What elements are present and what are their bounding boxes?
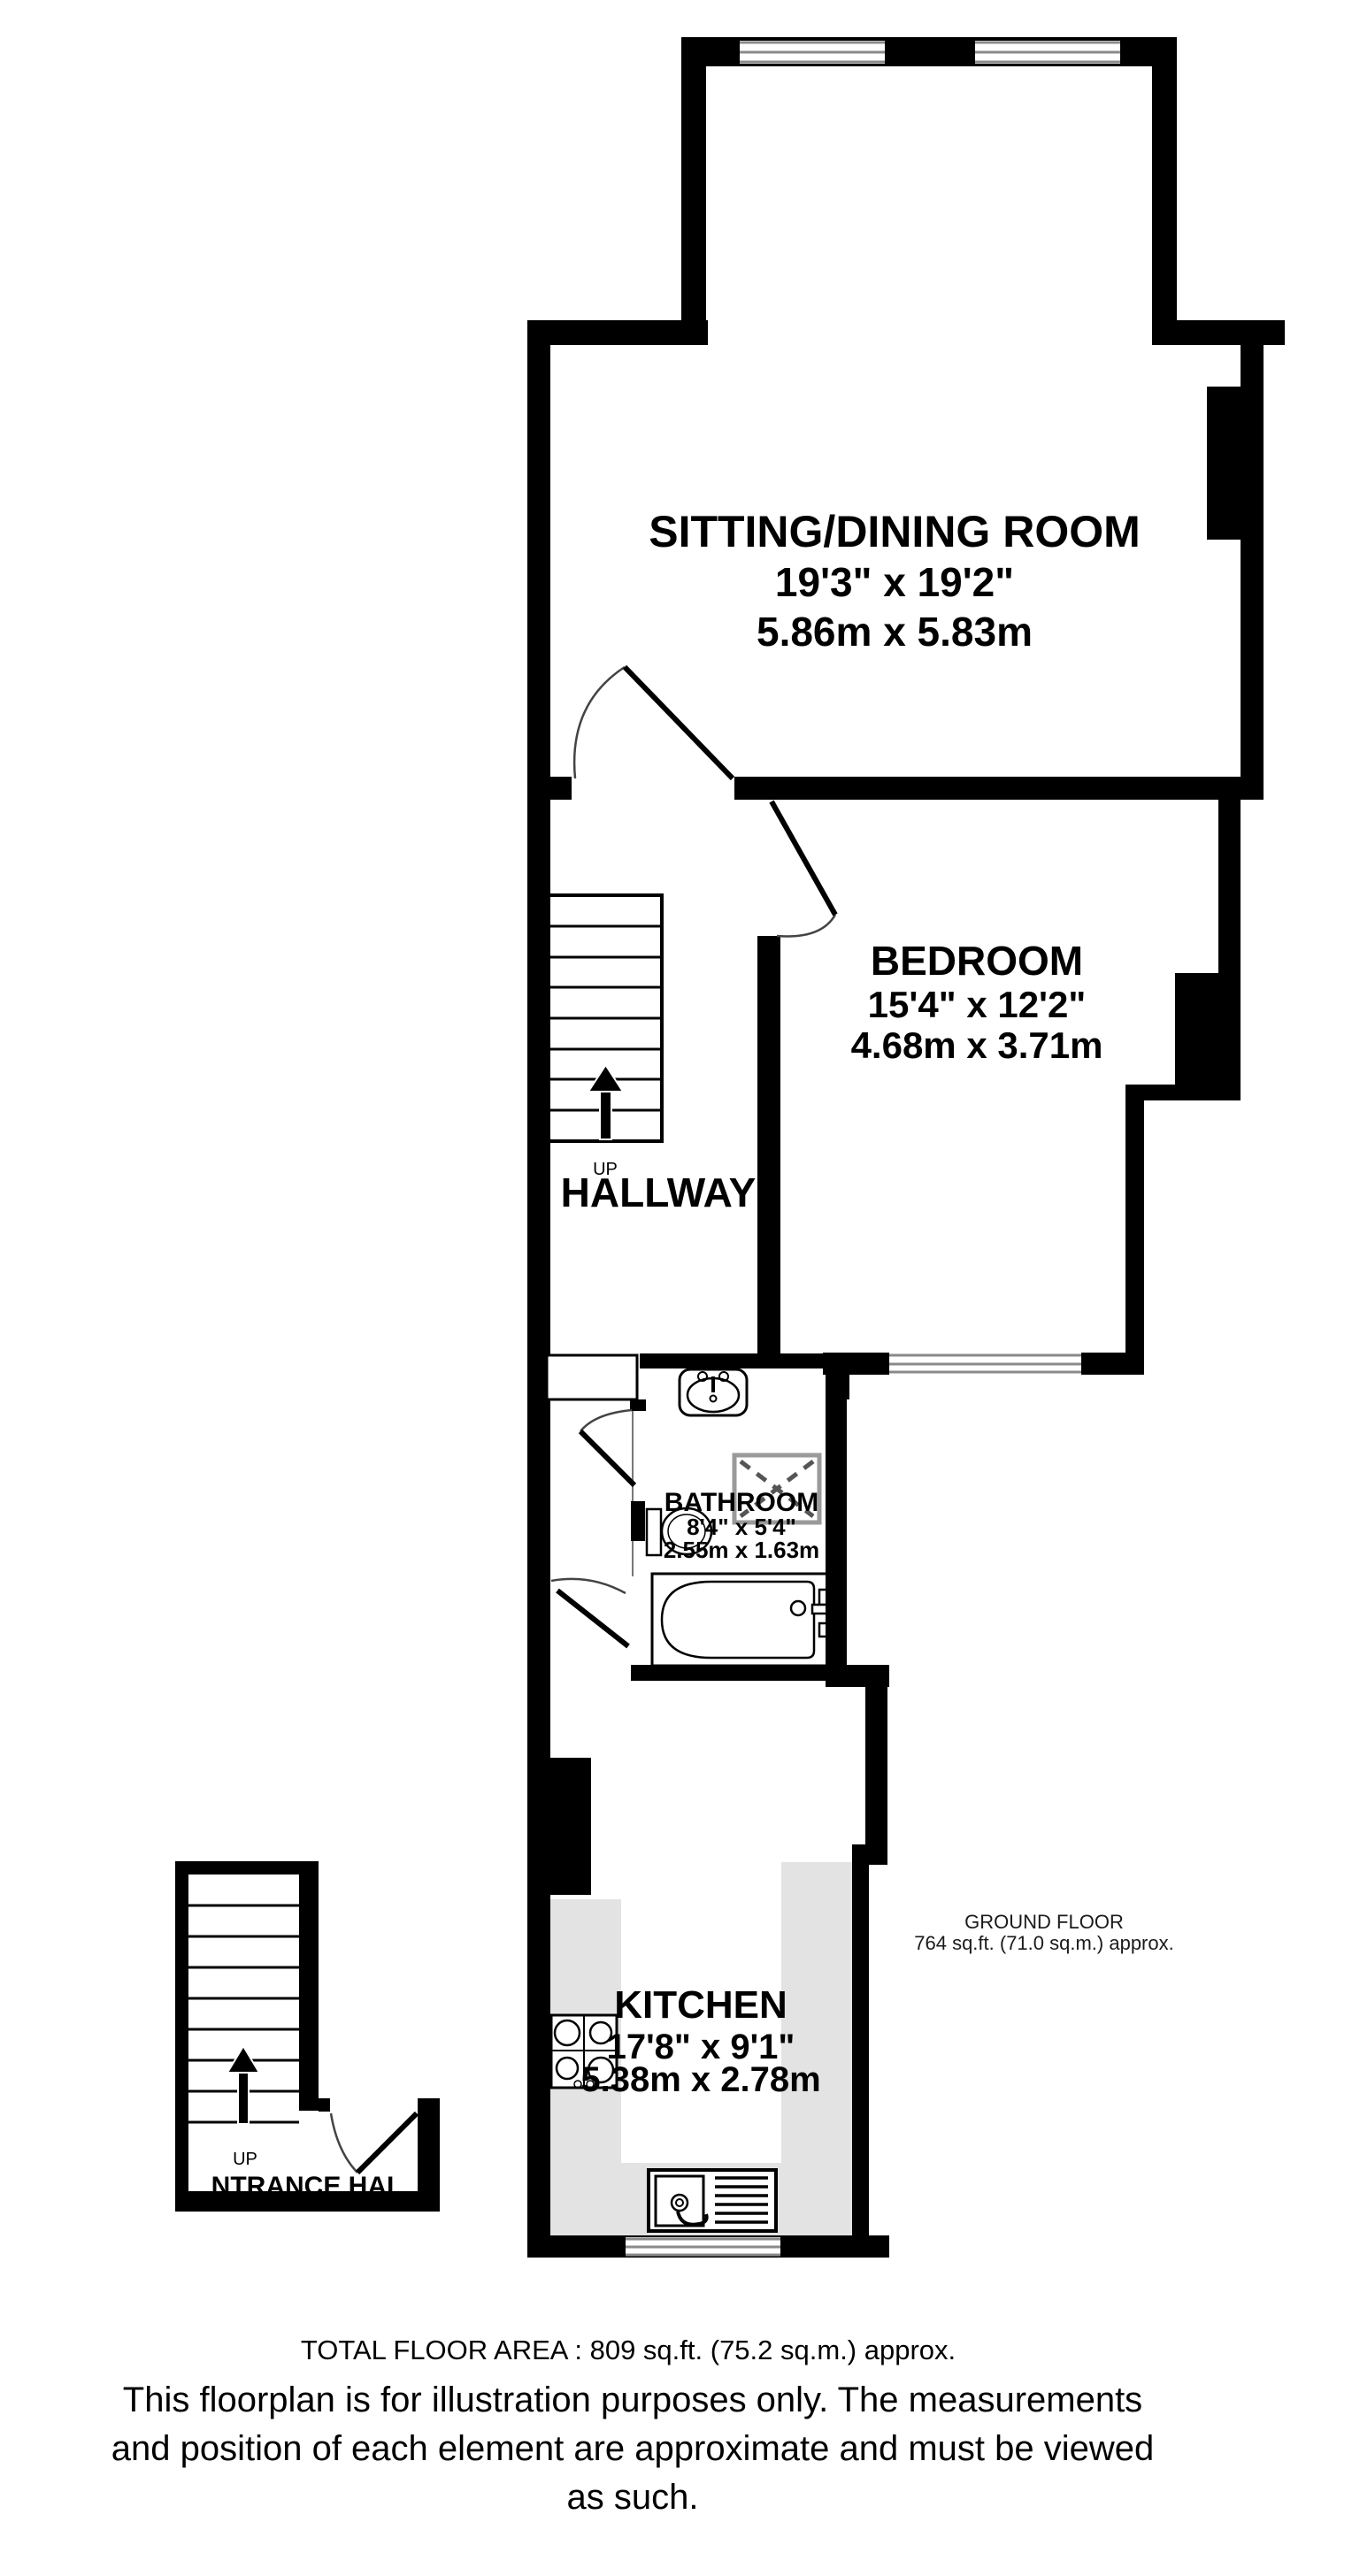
wall-kitchen-step (852, 1844, 887, 1865)
disclaimer-line-2: and position of each element are approxi… (111, 2429, 1155, 2468)
wall-bedroom-bottom-right (1081, 1353, 1144, 1375)
footer: TOTAL FLOOR AREA : 809 sq.ft. (75.2 sq.m… (111, 2334, 1155, 2517)
bedroom-dims-imperial: 15'4" x 12'2" (868, 984, 1087, 1025)
wall-bedroom-right-upper (1218, 800, 1241, 1085)
ground-floor-title: GROUND FLOOR (964, 1911, 1124, 1933)
hallway-staircase (549, 895, 662, 1141)
wall-kitchen-right-lower (852, 1865, 869, 2258)
wall-entrance-left (175, 1861, 188, 2212)
wall-bedroom-right-lower (1125, 1085, 1144, 1353)
sitting-dining-room-label: SITTING/DINING ROOM (649, 507, 1141, 556)
wall-entrance-right-block (418, 2098, 440, 2196)
entrance-up-label: UP (233, 2150, 257, 2169)
floorplan-drawing: SITTING/DINING ROOM 19'3" x 19'2" 5.86m … (0, 0, 1352, 2576)
disclaimer-line-1: This floorplan is for illustration purpo… (123, 2380, 1142, 2419)
wall-bathroom-top (640, 1353, 829, 1368)
wall-kitchen-right-upper (865, 1681, 887, 1865)
door-kitchen-corridor (551, 1579, 628, 1646)
door-entrance (331, 2113, 417, 2173)
wall-corridor-stub (630, 1399, 646, 1411)
wall-sitting-chimney (1207, 387, 1241, 540)
wall-bathroom-bottom (631, 1665, 847, 1681)
wall-entrance-top (175, 1861, 319, 1874)
floorplan-page: SITTING/DINING ROOM 19'3" x 19'2" 5.86m … (0, 0, 1352, 2576)
wall-bay-left (681, 37, 706, 345)
door-bathroom-corridor (580, 1410, 634, 1485)
hallway-cupboard (547, 1355, 637, 1399)
wall-bathroom-left-stub (631, 1501, 645, 1541)
bathroom-sink-icon (680, 1369, 747, 1415)
window-bedroom (889, 1354, 1081, 1373)
wall-entrance-stairs-right (299, 1861, 319, 2111)
kitchen-sink-icon (649, 2170, 776, 2231)
bedroom-dims-metric: 4.68m x 3.71m (851, 1024, 1103, 1066)
wall-bay-right (1152, 37, 1177, 345)
window-kitchen (626, 2237, 780, 2256)
wall-entrance-door-jamb (319, 2098, 330, 2112)
window-bay-left (740, 41, 885, 64)
wall-hallway-bedroom-divider (757, 936, 780, 1353)
floor-summary: GROUND FLOOR 764 sq.ft. (71.0 sq.m.) app… (914, 1911, 1173, 1954)
bathroom-dims-metric: 2.55m x 1.63m (664, 1537, 819, 1563)
sitting-dining-room-dims-imperial: 19'3" x 19'2" (775, 559, 1014, 605)
hallway-label: HALLWAY (561, 1169, 757, 1215)
entrance-staircase (188, 1874, 299, 2124)
kitchen-label: KITCHEN (614, 1983, 787, 2027)
wall-sitting-bottom-left-stub (550, 777, 572, 800)
wall-kitchen-left-block (549, 1758, 591, 1895)
wall-bedroom-chimney (1175, 973, 1218, 1085)
wall-sitting-bottom (734, 777, 1264, 800)
wall-shoulder-left (527, 320, 708, 345)
bedroom-label: BEDROOM (871, 938, 1083, 984)
wall-left-exterior (527, 320, 550, 2258)
door-bedroom (772, 801, 835, 937)
ground-floor-area: 764 sq.ft. (71.0 sq.m.) approx. (914, 1932, 1173, 1954)
entrance-hall-label: NTRANCE HAL (211, 2172, 403, 2201)
disclaimer-line-3: as such. (567, 2478, 699, 2517)
bathroom-bathtub-icon (652, 1574, 831, 1666)
kitchen-dims-metric: 5.38m x 2.78m (580, 2060, 820, 2099)
window-bay-right (975, 41, 1120, 64)
door-sitting-room (574, 667, 733, 778)
wall-bathroom-right (826, 1353, 847, 1665)
total-floor-area: TOTAL FLOOR AREA : 809 sq.ft. (75.2 sq.m… (301, 2334, 956, 2365)
wall-shoulder-right (1152, 320, 1285, 345)
wall-sitting-right (1241, 320, 1264, 800)
sitting-dining-room-dims-metric: 5.86m x 5.83m (757, 609, 1033, 655)
